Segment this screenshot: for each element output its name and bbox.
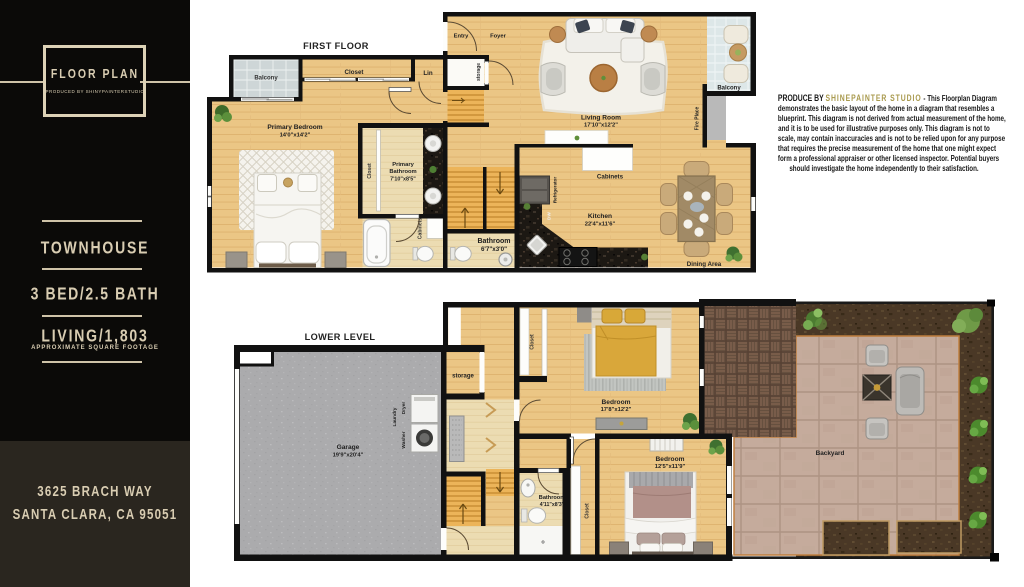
svg-text:Foyer: Foyer [490, 34, 507, 40]
svg-text:storage: storage [452, 374, 474, 380]
svg-text:Dryer: Dryer [401, 402, 407, 415]
svg-text:6'7"x3'0": 6'7"x3'0" [481, 246, 507, 253]
svg-text:7'10"x8'5": 7'10"x8'5" [390, 177, 416, 183]
svg-text:4'11"x8'3": 4'11"x8'3" [540, 502, 565, 508]
svg-text:Bathroom: Bathroom [539, 495, 565, 501]
svg-text:Fire Place: Fire Place [695, 106, 701, 130]
svg-text:Entry: Entry [454, 34, 470, 40]
svg-text:Laundry: Laundry [392, 407, 398, 426]
svg-text:Balcony: Balcony [254, 76, 278, 82]
svg-text:Refrigerator: Refrigerator [553, 177, 558, 204]
svg-text:Bathroom: Bathroom [389, 169, 416, 175]
svg-text:17'10"x12'2": 17'10"x12'2" [584, 123, 618, 129]
svg-text:12'5"x11'9": 12'5"x11'9" [655, 464, 686, 470]
svg-text:Bedroom: Bedroom [656, 456, 685, 463]
svg-text:Bathroom: Bathroom [477, 238, 510, 245]
svg-text:Closet: Closet [367, 163, 373, 179]
svg-text:Garage: Garage [337, 444, 360, 451]
svg-text:Primary Bedroom: Primary Bedroom [267, 124, 322, 131]
svg-text:Primary: Primary [392, 162, 414, 168]
svg-text:Washer: Washer [401, 431, 407, 448]
svg-text:LOWER LEVEL: LOWER LEVEL [305, 332, 376, 342]
svg-text:Backyard: Backyard [816, 450, 845, 457]
svg-text:Cabinets: Cabinets [597, 174, 624, 181]
svg-text:Closet: Closet [530, 334, 536, 350]
svg-text:Closet: Closet [345, 69, 364, 76]
svg-text:14'0"x14'2": 14'0"x14'2" [280, 133, 311, 139]
svg-text:Bedroom: Bedroom [602, 399, 631, 406]
svg-text:22'4"x11'6": 22'4"x11'6" [585, 222, 616, 228]
svg-text:Balcony: Balcony [717, 86, 741, 92]
svg-text:storage: storage [476, 63, 482, 81]
svg-text:Living Room: Living Room [581, 115, 621, 122]
svg-text:DW: DW [547, 212, 552, 220]
svg-text:17'8"x12'2": 17'8"x12'2" [601, 407, 632, 413]
svg-text:Dining Area: Dining Area [687, 261, 722, 268]
svg-text:Kitchen: Kitchen [588, 213, 612, 220]
svg-text:FIRST FLOOR: FIRST FLOOR [303, 41, 369, 51]
svg-text:19'9"x20'4": 19'9"x20'4" [333, 453, 364, 459]
svg-text:Closet: Closet [585, 503, 591, 519]
svg-text:Lin: Lin [423, 70, 432, 77]
